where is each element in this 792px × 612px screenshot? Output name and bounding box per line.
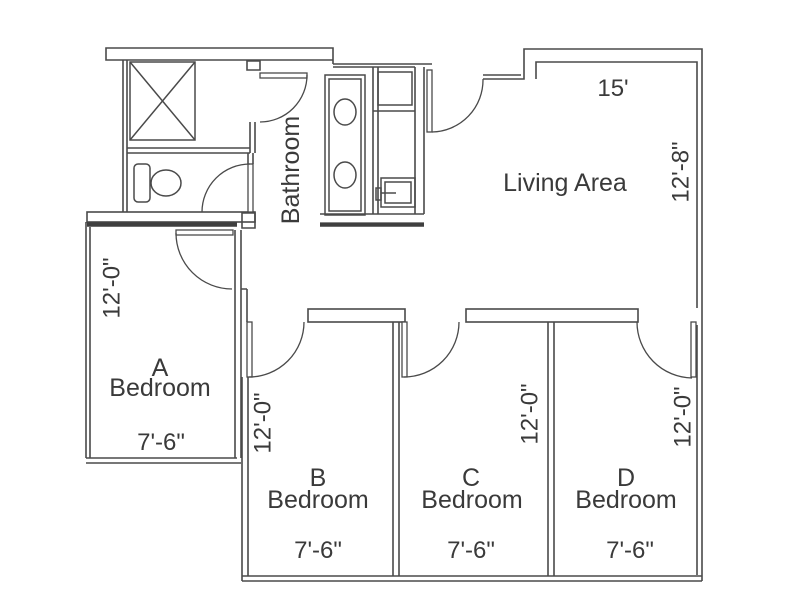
bedroom-d-width-dim: 7'-6" bbox=[606, 537, 654, 564]
living-area-label: Living Area bbox=[503, 169, 627, 197]
wall-bar-bedroom-b bbox=[308, 309, 405, 322]
bedroom-a-depth-dim: 12'-0" bbox=[99, 257, 126, 318]
wall-bath-top bbox=[333, 64, 432, 67]
shower-stall bbox=[130, 62, 195, 140]
doors bbox=[176, 70, 696, 378]
bedroom-c-depth-dim: 12'-0" bbox=[517, 383, 544, 444]
vanity-double-sink bbox=[325, 75, 365, 215]
wall-bedrooms-bottom bbox=[242, 576, 702, 581]
bedroom-a-door-arc bbox=[176, 233, 232, 289]
bedroom-a-door-leaf bbox=[176, 230, 233, 235]
wall-left-bath bbox=[123, 60, 127, 212]
closet-shelf bbox=[373, 72, 415, 111]
bedroom-c-door-arc bbox=[404, 322, 459, 377]
bedroom-a-width-dim: 7'-6" bbox=[137, 429, 185, 456]
bedroom-b-width-dim: 7'-6" bbox=[294, 537, 342, 564]
bedroom-b-depth-dim: 12'-0" bbox=[250, 392, 277, 453]
bedroom-c-door-leaf bbox=[402, 322, 407, 377]
bedroom-b-door-arc bbox=[249, 322, 304, 377]
shower-room-door-leaf bbox=[260, 73, 307, 78]
floor-plan-page: Bathroom Living Area 15' 12'-8" A Bedroo… bbox=[0, 0, 792, 612]
entry-hall-door-arc bbox=[432, 79, 483, 132]
wall-corridor-band bbox=[87, 212, 255, 222]
wall-toilet-room bbox=[127, 122, 255, 164]
entry-hall-door-leaf bbox=[427, 70, 432, 132]
bedroom-c-label: Bedroom bbox=[421, 486, 522, 514]
sink-basin-2 bbox=[334, 162, 356, 188]
toilet-room-door-leaf bbox=[248, 164, 253, 212]
bedroom-d-door-leaf bbox=[691, 322, 696, 377]
living-area-depth-dim: 12'-8" bbox=[668, 141, 695, 202]
bathroom-label: Bathroom bbox=[277, 116, 305, 224]
bedroom-d-label: Bedroom bbox=[575, 486, 676, 514]
floor-plan-drawing: Bathroom Living Area 15' 12'-8" A Bedroo… bbox=[0, 0, 792, 612]
wall-bar-bedroom-cd bbox=[466, 309, 638, 322]
bedroom-d-door-arc bbox=[637, 322, 692, 378]
bedroom-b-label: Bedroom bbox=[267, 486, 368, 514]
toilet-fixture bbox=[134, 164, 181, 202]
toilet-room-door-arc bbox=[202, 164, 250, 212]
wall-jamb-shower-door bbox=[247, 61, 260, 70]
bedroom-d-depth-dim: 12'-0" bbox=[670, 386, 697, 447]
utility-sink bbox=[376, 178, 415, 207]
sink-basin-1 bbox=[334, 99, 356, 125]
living-area-width-dim: 15' bbox=[597, 75, 628, 102]
wall-corridor-jamb bbox=[242, 213, 255, 228]
shower-room-door-arc bbox=[260, 75, 307, 122]
bedroom-a-label: Bedroom bbox=[109, 374, 210, 402]
bedroom-c-width-dim: 7'-6" bbox=[447, 537, 495, 564]
bedroom-b-door-leaf bbox=[247, 322, 252, 377]
